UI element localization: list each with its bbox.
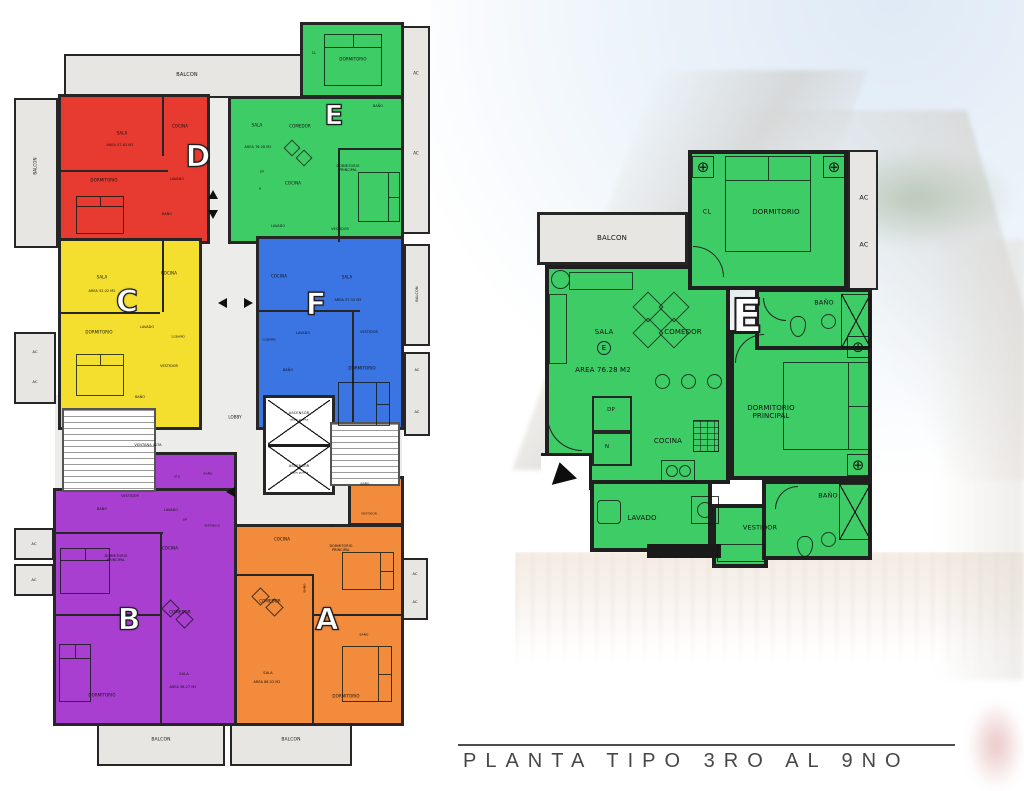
room-label: AC: [414, 410, 419, 414]
room-label: DORMITORIO: [90, 179, 117, 184]
unit-letter-c: C: [116, 285, 138, 320]
room-label: COMEDOR: [289, 125, 311, 130]
room-label: COCINA: [274, 538, 290, 543]
room-label: COCINA: [162, 547, 178, 552]
room-label: COCINA: [172, 125, 188, 130]
room-label: BAÑO: [204, 472, 213, 475]
room-label: BALCON: [415, 286, 419, 301]
room-label: BAÑO: [97, 508, 107, 512]
room-label: AREA 98.27 M2: [170, 686, 197, 690]
room-label: doble puerta: [290, 471, 309, 474]
room-label: doble puerta: [290, 418, 309, 421]
room-label: DORMITORIO PRINCIPAL: [336, 165, 359, 173]
room-label: AC: [413, 152, 419, 157]
unit-letter-e-large: E: [731, 289, 762, 343]
unit-letter-e: E: [324, 99, 343, 132]
room-label: AC: [413, 72, 419, 77]
room-label: LAVADO: [164, 509, 178, 513]
room-label: AC: [412, 572, 417, 576]
room-label: DP: [183, 518, 187, 521]
room-label: COMEDOR: [259, 600, 281, 605]
room-label: AC: [31, 578, 36, 582]
room-label: COMEDOR: [169, 611, 191, 616]
room-label: DP: [260, 170, 264, 173]
room-label: VESTIDOR: [361, 512, 377, 515]
room-label: DORMITORIO: [339, 58, 366, 63]
room-label: VESTIDOR: [160, 365, 178, 369]
room-label: BAÑO: [303, 584, 306, 593]
title-rule: [458, 744, 955, 746]
room-label: AC: [32, 350, 37, 354]
room-label: BAÑO: [283, 369, 293, 373]
room-label: SALA: [263, 671, 273, 675]
room-label: AC: [31, 542, 36, 546]
room-label: BALCON: [151, 737, 170, 742]
room-label: AREA 76.28 M2: [245, 146, 272, 150]
overview-labels-layer: BALCONACACBALCONACACBALCONACACACACACACLO…: [12, 14, 424, 770]
room-label: DORMITORIO PRINCIPAL: [747, 404, 795, 420]
background-building-edge: [935, 240, 1024, 680]
room-label: COCINA: [654, 437, 682, 445]
room-label: BAÑO: [360, 633, 369, 636]
room-label: LAVADO: [170, 178, 184, 182]
room-label: DORMITORIO: [88, 694, 115, 699]
background-flowers: [968, 700, 1024, 790]
room-label: LOBBY: [228, 416, 241, 421]
room-label: CL: [703, 208, 711, 215]
room-label: UTIL: [174, 475, 181, 478]
room-label: CL: [312, 52, 316, 56]
room-label: SALA: [179, 672, 189, 676]
room-label: DORMITORIO PRINCIPAL: [104, 555, 127, 563]
room-label: DORMITORIO: [332, 695, 359, 700]
room-label: AC: [859, 241, 868, 248]
room-label: VESTIBULO: [204, 524, 220, 527]
room-label: AC: [859, 194, 868, 201]
room-label: BAÑO: [373, 105, 383, 109]
unit-letter-b: B: [118, 603, 141, 638]
room-label: 1/2BAÑO: [262, 338, 276, 341]
room-label: SALA: [97, 276, 108, 281]
room-label: N: [259, 187, 261, 190]
unit-letter-a: A: [315, 603, 338, 638]
room-label: AREA 57.83 M2: [107, 144, 134, 148]
room-label: SALA: [117, 132, 128, 137]
room-label: LAVADO: [271, 225, 285, 229]
room-label: CL: [330, 524, 334, 527]
room-label: ASCENSOR: [289, 464, 309, 468]
room-label: BALCON: [34, 157, 39, 174]
room-label: AREA 76.28 M2: [575, 366, 631, 374]
room-label: SALA: [595, 328, 614, 336]
room-label: VESTIDOR: [360, 331, 378, 335]
room-label: AREA 57.33 M2: [335, 299, 362, 303]
room-label: BALCON: [281, 737, 300, 742]
floor-plan-poster: BALCONACACBALCONACACBALCONACACACACACACLO…: [0, 0, 1024, 791]
room-label: DP: [607, 407, 615, 413]
room-label: VESTIDOR: [331, 228, 349, 232]
room-label: BAÑO: [814, 299, 833, 306]
room-label: AC: [32, 380, 37, 384]
room-label: BAÑO: [818, 492, 837, 499]
room-label: COCINA: [271, 275, 287, 280]
room-label: LAVADO: [296, 332, 310, 336]
unit-letter-f: F: [306, 288, 327, 323]
room-label: COMEDOR: [664, 328, 702, 336]
room-label: VENTANA ALTA: [134, 443, 161, 447]
room-label: AC: [414, 368, 419, 372]
room-label: LAVADO: [140, 326, 154, 330]
room-label: LAVADO: [627, 514, 656, 522]
room-label: AREA 52.02 M2: [89, 290, 116, 294]
room-label: SALA: [342, 276, 353, 281]
room-label: DORMITORIO: [752, 208, 800, 216]
overview-floor-plan: BALCONACACBALCONACACBALCONACACACACACACLO…: [12, 14, 424, 770]
room-label: SALA: [252, 124, 263, 129]
room-label: BAÑO: [162, 213, 172, 217]
room-label: 1/2BAÑO: [171, 335, 185, 338]
room-label: VESTIDOR: [743, 524, 777, 531]
room-label: BALCON: [597, 234, 627, 242]
room-label: COCINA: [161, 272, 177, 277]
title-block: PLANTA TIPO 3RO AL 9NO: [455, 736, 970, 784]
room-label: VESTIDOR: [121, 495, 139, 499]
room-label: N: [605, 444, 609, 450]
room-label: ASCENSOR: [289, 411, 309, 415]
room-label: DORMITORIO: [85, 331, 112, 336]
room-label: BAÑO: [135, 396, 145, 400]
room-label: AREA 86.03 M2: [254, 681, 281, 685]
room-label: AC: [412, 600, 417, 604]
detail-labels-layer: BALCONCLDORMITORIOACACSALACOMEDORAREA 76…: [535, 148, 880, 613]
page-title: PLANTA TIPO 3RO AL 9NO: [463, 750, 910, 773]
room-label: BALCON: [176, 73, 197, 79]
room-label: BAÑO: [361, 482, 370, 485]
room-label: DORMITORIO PRINCIPAL: [329, 545, 352, 553]
unit-letter-d: D: [186, 140, 211, 175]
unit-e-detail-plan: ⊕ ⊕ ⊕ ⊕ E BALCO: [535, 148, 880, 613]
room-label: DORMITORIO: [348, 367, 375, 372]
room-label: COCINA: [285, 182, 301, 187]
